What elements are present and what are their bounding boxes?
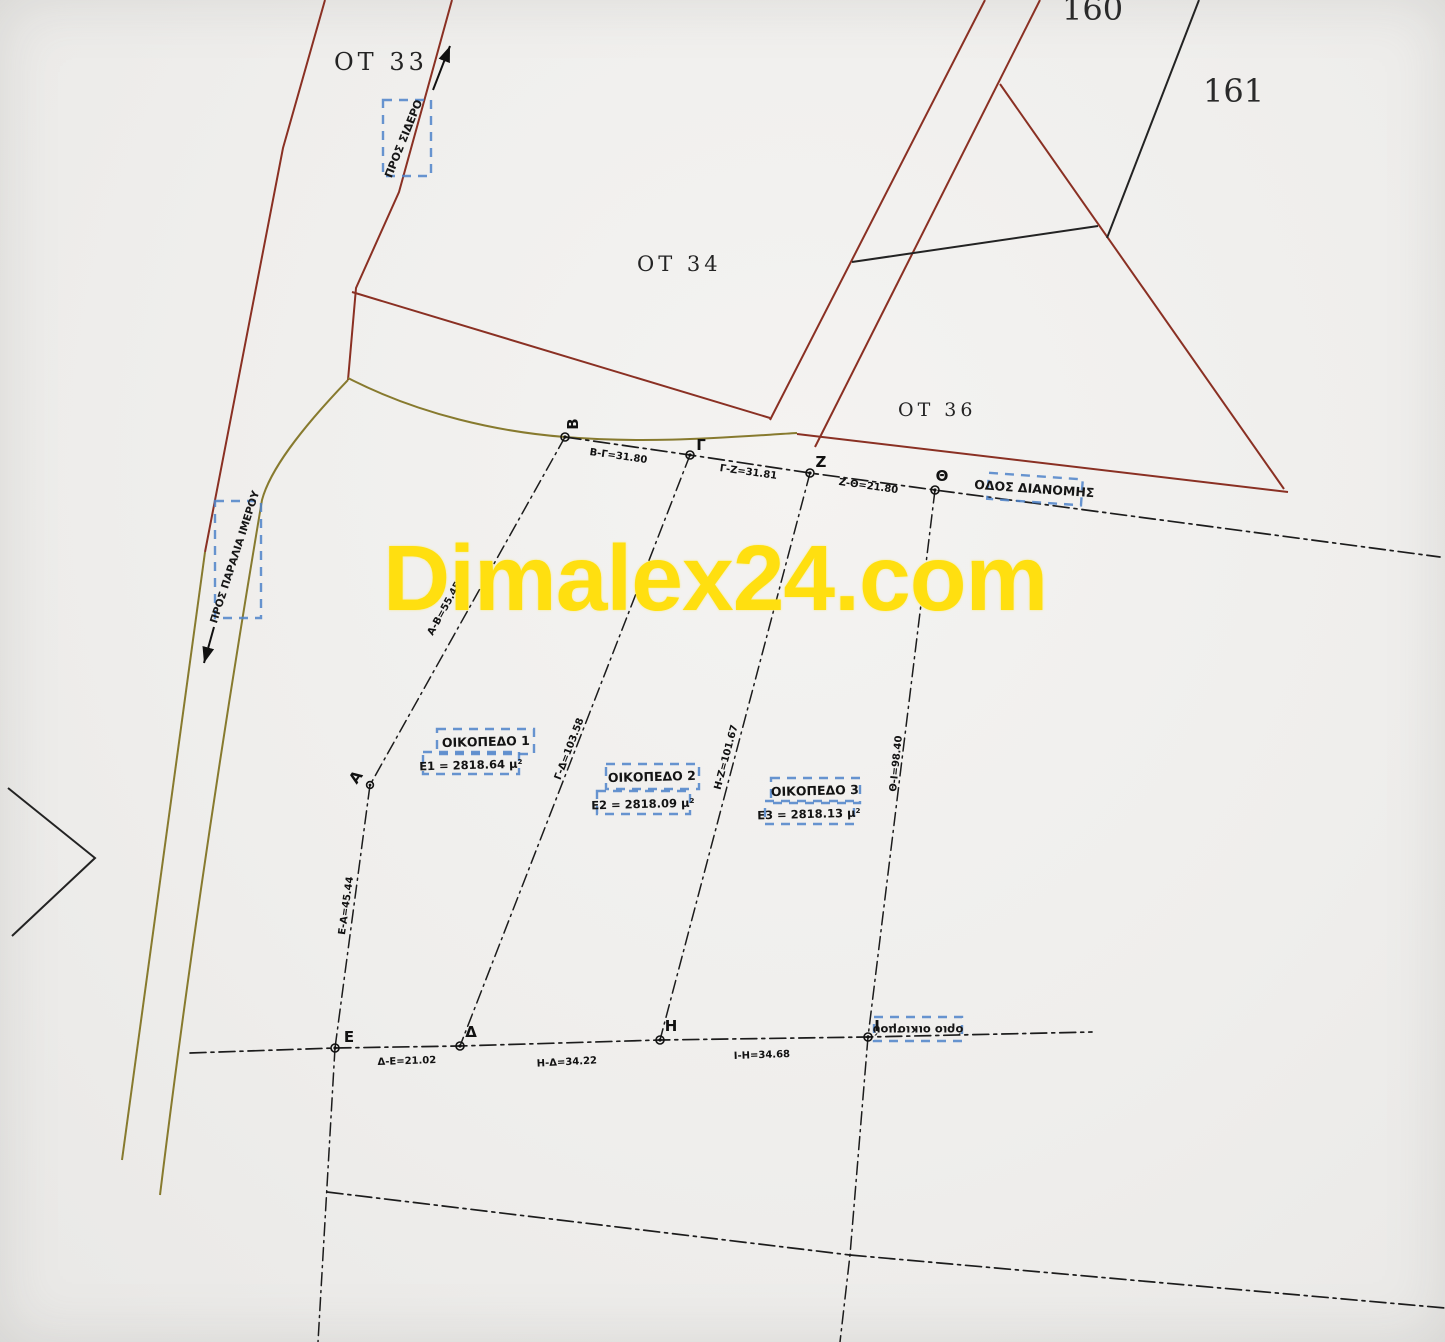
direction-arrow-north: [433, 46, 450, 90]
measurement-E-A: Ε-Α=45.44: [337, 876, 356, 936]
boundary-ot36-subdivision: [852, 226, 1098, 262]
measurement-Z-TH: Ζ-Θ=21.80: [838, 477, 899, 496]
boundary-161-diagonal: [1107, 0, 1199, 238]
block-label-160: 160: [1062, 0, 1123, 28]
point-G-dot: [688, 453, 691, 456]
block-label-ot34: OT 34: [637, 252, 722, 276]
point-label-E: E: [344, 1028, 354, 1046]
road-right-east-border: [815, 0, 1040, 447]
annotation-pros-sidero: ΠΡΟΣ ΣΙΔΕΡΟ: [382, 98, 425, 180]
road-upper-left-west-border: [205, 0, 325, 552]
point-D-dot: [458, 1044, 461, 1047]
boundary-lower-right-line: [850, 1255, 1445, 1308]
measurement-H-Z: Η-Ζ=101.67: [713, 724, 741, 791]
point-label-D: Δ: [465, 1023, 477, 1041]
point-label-G: Γ: [696, 436, 706, 454]
parcel1-name: ΟΙΚΟΠΕΔΟ 1: [442, 733, 530, 750]
point-label-Z: Z: [816, 453, 827, 471]
block-label-ot33: OT 33: [334, 48, 428, 76]
measurement-D-E: Δ-Ε=21.02: [377, 1055, 436, 1068]
block-label-ot36: OT 36: [898, 399, 976, 421]
point-E-dot: [333, 1046, 336, 1049]
point-label-B: B: [564, 418, 582, 429]
annotation-odos-dianomis: ΟΔΟΣ ΔΙΑΝΟΜΗΣ: [974, 477, 1095, 500]
road-left-west-border: [122, 552, 205, 1160]
point-TH-dot: [933, 488, 936, 491]
measurement-G-D: Γ-Δ=103.58: [553, 717, 587, 782]
point-label-TH: Θ: [936, 467, 949, 485]
annotation-orio-oikismou: όριο οικισμού: [872, 1023, 963, 1037]
road-right-west-border: [770, 0, 985, 420]
parcel3-name: ΟΙΚΟΠΕΔΟ 3: [771, 782, 859, 799]
parcel3-area: E3 = 2818.13 μ²: [757, 806, 861, 823]
point-I-dot: [866, 1035, 869, 1038]
cadastral-map: B Γ Z Θ A E Δ H I Β-Γ=31.80 Γ-Ζ=31.81 Ζ-…: [0, 0, 1445, 1342]
measurement-H-D: Η-Δ=34.22: [536, 1055, 597, 1069]
boundary-below-E: [318, 1048, 335, 1342]
point-B-dot: [563, 435, 566, 438]
watermark-text: Dimalex24.com: [383, 525, 1047, 632]
point-A-dot: [369, 784, 372, 787]
measurement-I-H: Ι-Η=34.68: [734, 1049, 791, 1062]
boundary-bottom-left-corner: [8, 788, 95, 936]
point-H-dot: [658, 1038, 661, 1041]
survey-drawing: B Γ Z Θ A E Δ H I Β-Γ=31.80 Γ-Ζ=31.81 Ζ-…: [0, 0, 1445, 1342]
measurement-B-G: Β-Γ=31.80: [589, 447, 648, 466]
point-label-H: H: [665, 1017, 678, 1035]
measurement-TH-I: Θ-Ι=98.40: [888, 735, 905, 792]
measurement-G-Z: Γ-Ζ=31.81: [719, 463, 778, 482]
boundary-below-I: [840, 1037, 868, 1342]
direction-arrow-south: [204, 627, 214, 663]
parcel2-area: E2 = 2818.09 μ²: [591, 796, 695, 813]
parcel1-area: E1 = 2818.64 μ²: [419, 757, 523, 774]
parcel2-name: ΟΙΚΟΠΕΔΟ 2: [608, 768, 696, 785]
block-label-161: 161: [1203, 72, 1264, 110]
block-ot34-south-boundary: [352, 292, 770, 418]
point-label-A: A: [345, 767, 367, 787]
annotation-pros-paralia: ΠΡΟΣ ΠΑΡΑΛΙΑ ΙΜΕΡΟΥ: [208, 489, 262, 625]
boundary-lower-cross-line: [327, 1192, 850, 1255]
point-Z-dot: [808, 471, 811, 474]
